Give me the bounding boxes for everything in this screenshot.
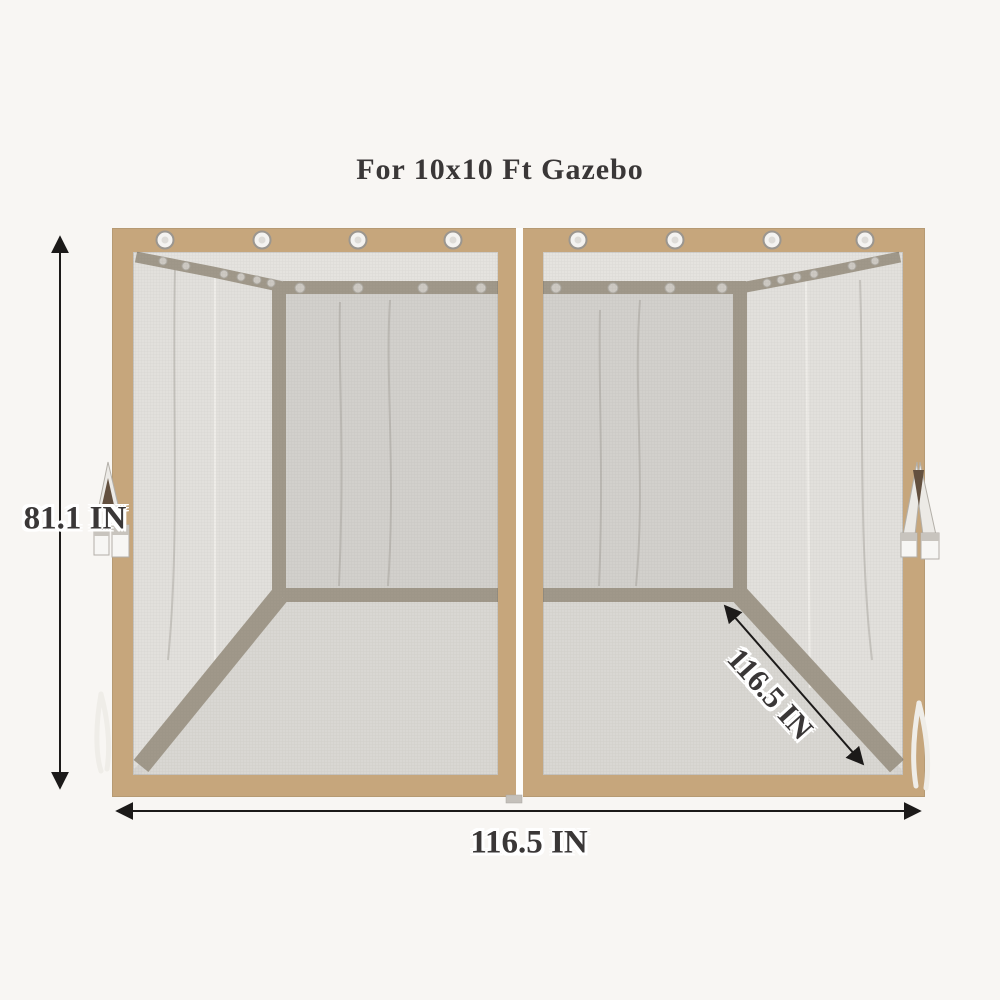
diagram-title: For 10x10 Ft Gazebo — [0, 153, 1000, 187]
grommet — [764, 232, 781, 249]
height-dimension-label: 81.1 IN — [24, 501, 127, 538]
netting-panel-right — [522, 228, 925, 797]
grommet — [857, 232, 874, 249]
grommet — [157, 232, 174, 249]
grommet — [570, 232, 587, 249]
grommet — [254, 232, 271, 249]
grommet — [667, 232, 684, 249]
grommet — [350, 232, 367, 249]
grommet — [445, 232, 462, 249]
width-dimension-label: 116.5 IN — [470, 825, 587, 862]
netting-panel-left — [112, 228, 517, 797]
panel-split-gap — [516, 228, 523, 797]
corner-tie-left — [97, 694, 109, 771]
bottom-center-tab — [506, 795, 522, 803]
product-image: For 10x10 Ft Gazebo 81.1 IN 116.5 IN 116… — [0, 0, 1000, 1000]
